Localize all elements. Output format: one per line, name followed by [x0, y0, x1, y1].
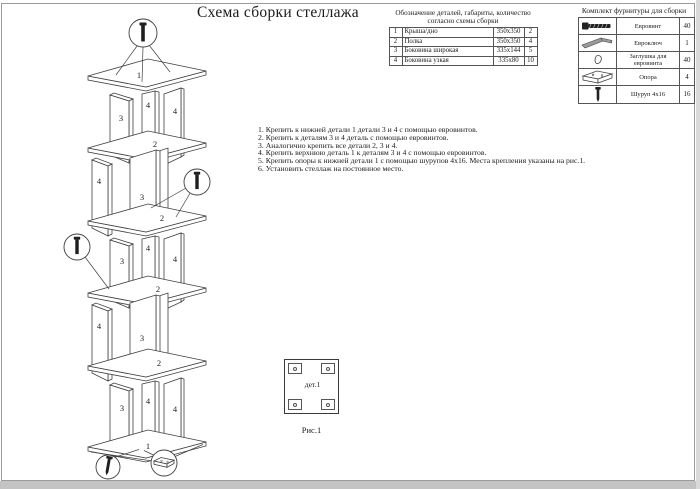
part-size: 350х350 — [493, 37, 524, 47]
figure-1-part-label: дет.1 — [285, 380, 340, 389]
hardware-name: Опора — [617, 69, 680, 86]
part-label: 1 — [146, 441, 150, 451]
screw-hole-icon — [293, 403, 297, 407]
instruction-step: 6. Установить стеллаж на постоянное мест… — [258, 165, 585, 173]
hardware-table-block: Комплект фурнитуры для сборки Евровинт — [570, 6, 698, 104]
parts-table-block: Обозначение деталей, габариты, количеств… — [380, 9, 546, 66]
support-plate-icon — [321, 399, 335, 410]
part-qty: 2 — [524, 28, 537, 38]
table-row: Евровинт 40 — [579, 18, 695, 35]
assembly-diagram: 1 3 4 4 2 4 3 2 3 4 4 2 4 3 2 3 4 4 1 — [40, 8, 250, 486]
hardware-qty: 40 — [680, 18, 695, 35]
parts-table-title-line1: Обозначение деталей, габариты, количеств… — [380, 9, 546, 17]
hardware-icon-cell — [579, 35, 617, 52]
part-label: 3 — [140, 192, 144, 202]
hardware-qty: 1 — [680, 35, 695, 52]
support-icon — [581, 69, 615, 85]
euroscrew-icon — [581, 20, 615, 32]
part-number: 3 — [389, 47, 402, 57]
table-row: 3 Боковина широкая 335х144 5 — [389, 47, 537, 57]
part-qty: 5 — [524, 47, 537, 57]
screw-hole-icon — [326, 367, 330, 371]
support-callout-bottom — [151, 450, 177, 476]
part-size: 335х144 — [493, 47, 524, 57]
euroscrew-callout-left — [64, 234, 90, 260]
table-row: Евроключ 1 — [579, 35, 695, 52]
screw-hole-icon — [293, 367, 297, 371]
part-size: 335х80 — [493, 56, 524, 66]
hardware-qty: 4 — [680, 69, 695, 86]
euroscrew-callout-right — [184, 169, 210, 195]
screw-callout-bottom — [96, 455, 120, 479]
hardware-name: Шуруп 4х16 — [617, 86, 680, 104]
figure-1-panel: дет.1 — [284, 359, 339, 414]
figure-1-caption: Рис.1 — [284, 425, 339, 435]
part-label: 2 — [156, 284, 160, 294]
part-label: 1 — [137, 70, 141, 80]
top-panel — [88, 59, 206, 91]
instruction-list: 1. Крепить к нижней детали 1 детали 3 и … — [258, 126, 585, 173]
table-row: Опора 4 — [579, 69, 695, 86]
hardware-name: Евровинт — [617, 18, 680, 35]
part-number: 4 — [389, 56, 402, 66]
hexkey-icon — [581, 36, 615, 50]
table-row: Шуруп 4х16 16 — [579, 86, 695, 104]
part-size: 350х350 — [493, 28, 524, 38]
part-label: 3 — [140, 333, 144, 343]
table-row: Заглушка для евровинта 40 — [579, 52, 695, 69]
euroscrew-callout-top — [129, 19, 157, 47]
parts-table: 1 Крыша/дно 350х350 2 2 Полка 350х350 4 … — [389, 27, 538, 66]
part-number: 2 — [389, 37, 402, 47]
part-name: Полка — [402, 37, 493, 47]
part-label: 3 — [120, 403, 124, 413]
parts-table-title-line2: согласно схемы сборки — [380, 17, 546, 25]
part-name: Крыша/дно — [402, 28, 493, 38]
screw-hole-icon — [326, 403, 330, 407]
screw-icon — [591, 86, 605, 103]
support-plate-icon — [288, 363, 302, 374]
hardware-icon-cell — [579, 52, 617, 69]
hardware-icon-cell — [579, 18, 617, 35]
part-label: 2 — [157, 358, 161, 368]
part-label: 3 — [119, 113, 123, 123]
part-qty: 4 — [524, 37, 537, 47]
cap-icon — [591, 54, 605, 66]
hardware-icon-cell — [579, 86, 617, 104]
hardware-table-title: Комплект фурнитуры для сборки — [570, 6, 698, 15]
hardware-table: Евровинт 40 Евроключ 1 — [578, 17, 695, 104]
hardware-qty: 40 — [680, 52, 695, 69]
support-plate-icon — [288, 399, 302, 410]
hardware-name: Заглушка для евровинта — [617, 52, 680, 69]
table-row: 1 Крыша/дно 350х350 2 — [389, 28, 537, 38]
hardware-name: Евроключ — [617, 35, 680, 52]
part-name: Боковина узкая — [402, 56, 493, 66]
support-plate-icon — [321, 363, 335, 374]
part-qty: 10 — [524, 56, 537, 66]
table-row: 4 Боковина узкая 335х80 10 — [389, 56, 537, 66]
assembly-instruction-page: { "page": { "title": "Схема сборки стелл… — [0, 0, 700, 489]
table-row: 2 Полка 350х350 4 — [389, 37, 537, 47]
figure-1: дет.1 Рис.1 — [284, 359, 339, 435]
part-label: 2 — [153, 139, 157, 149]
hardware-qty: 16 — [680, 86, 695, 104]
part-label: 3 — [120, 256, 124, 266]
hardware-icon-cell — [579, 69, 617, 86]
part-label: 2 — [160, 213, 164, 223]
part-number: 1 — [389, 28, 402, 38]
part-name: Боковина широкая — [402, 47, 493, 57]
